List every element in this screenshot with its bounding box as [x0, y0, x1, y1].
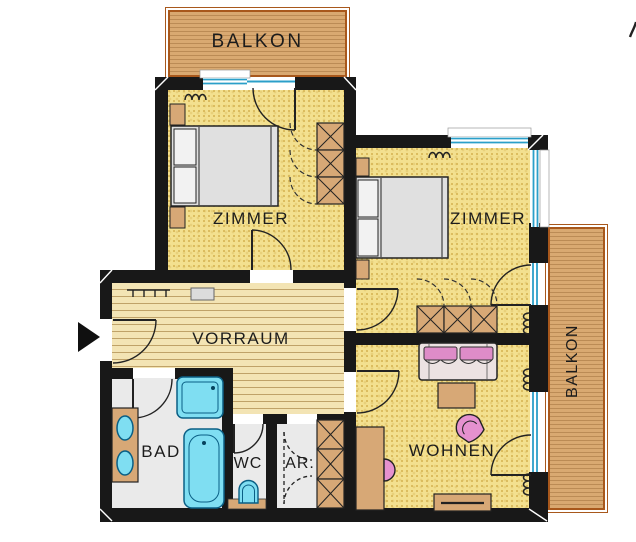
living-room-floor	[356, 345, 530, 508]
wc-label: WC	[229, 455, 267, 473]
corner-mark	[630, 22, 636, 37]
balcony-right-label: BALKON	[564, 321, 582, 401]
bathroom-label: BAD	[136, 442, 186, 462]
balcony-top-label: BALKON	[168, 31, 347, 53]
bedroom-right-label: ZIMMER	[433, 209, 543, 229]
bedroom-left-label: ZIMMER	[196, 209, 306, 229]
entrance-arrow-icon	[78, 322, 100, 352]
storage-label: AR.	[279, 455, 321, 473]
living-room-label: WOHNEN	[397, 441, 507, 461]
floor-plan: BALKON ZIMMER ZIMMER VORRAUM BAD WC AR. …	[0, 0, 636, 542]
bedroom-left-floor	[168, 90, 344, 270]
bedroom-right-floor	[356, 148, 530, 333]
hallway-label: VORRAUM	[186, 329, 296, 349]
